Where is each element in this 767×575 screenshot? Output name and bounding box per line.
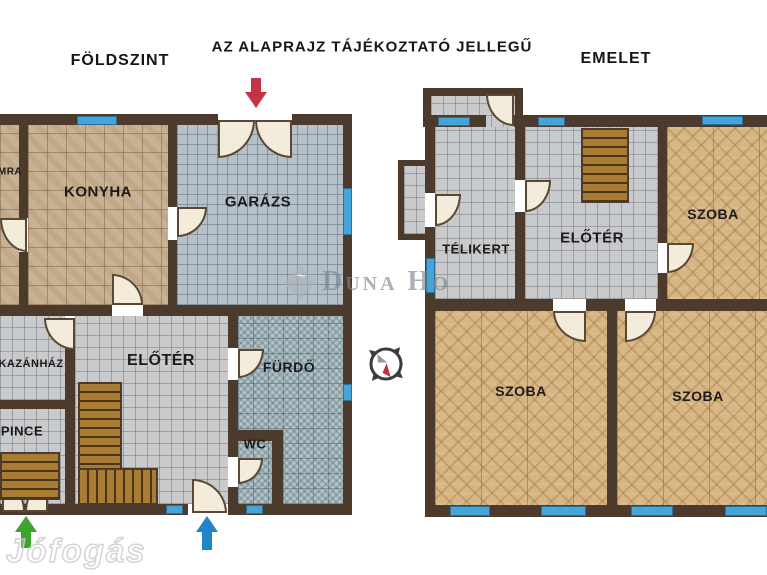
upper-floor-title: EMELET — [581, 50, 652, 68]
room-label-szoba-bl: SZOBA — [495, 383, 547, 399]
room-label-telikert: TÉLIKERT — [442, 242, 510, 257]
szoba-br-floor — [617, 311, 767, 505]
window — [77, 116, 117, 125]
compass-icon — [357, 335, 415, 398]
staircase-flight — [78, 382, 122, 470]
window — [246, 505, 263, 514]
room-label-szoba-top: SZOBA — [687, 206, 739, 222]
window — [541, 506, 586, 516]
window — [450, 506, 490, 516]
room-label-furdo: FÜRDŐ — [263, 359, 315, 375]
window — [343, 188, 352, 235]
staircase-upper — [581, 128, 629, 203]
floor-plan-image: FÖLDSZINT AZ ALAPRAJZ TÁJÉKOZTATÓ JELLEG… — [0, 0, 767, 575]
room-label-kamra: MRA — [0, 167, 22, 178]
window — [725, 506, 767, 516]
window — [702, 116, 743, 125]
window — [343, 384, 352, 401]
kamra-floor — [0, 125, 19, 305]
disclaimer-text: AZ ALAPRAJZ TÁJÉKOZTATÓ JELLEGŰ — [212, 39, 533, 56]
room-label-garazs: GARÁZS — [225, 194, 291, 211]
window — [438, 117, 470, 126]
agency-watermark-text: Duna Ho — [322, 266, 451, 298]
ground-floor-title: FÖLDSZINT — [71, 52, 170, 70]
room-label-szoba-br: SZOBA — [672, 388, 724, 404]
staircase-landing — [78, 468, 158, 505]
bay-floor — [404, 166, 425, 234]
room-label-wc: WC — [244, 437, 267, 452]
room-label-konyha: KONYHA — [64, 184, 132, 201]
room-label-pince: PINCE — [1, 424, 43, 439]
pince-steps — [0, 452, 60, 500]
room-label-eloter-uf: ELŐTÉR — [560, 230, 624, 247]
portal-watermark-text: Jófogás — [6, 532, 147, 570]
window — [631, 506, 673, 516]
window — [538, 117, 565, 126]
konyha-floor — [28, 125, 168, 305]
room-label-eloter-gf: ELŐTÉR — [127, 352, 195, 370]
window — [166, 505, 183, 514]
room-label-kazanhaz: KAZÁNHÁZ — [0, 358, 64, 370]
